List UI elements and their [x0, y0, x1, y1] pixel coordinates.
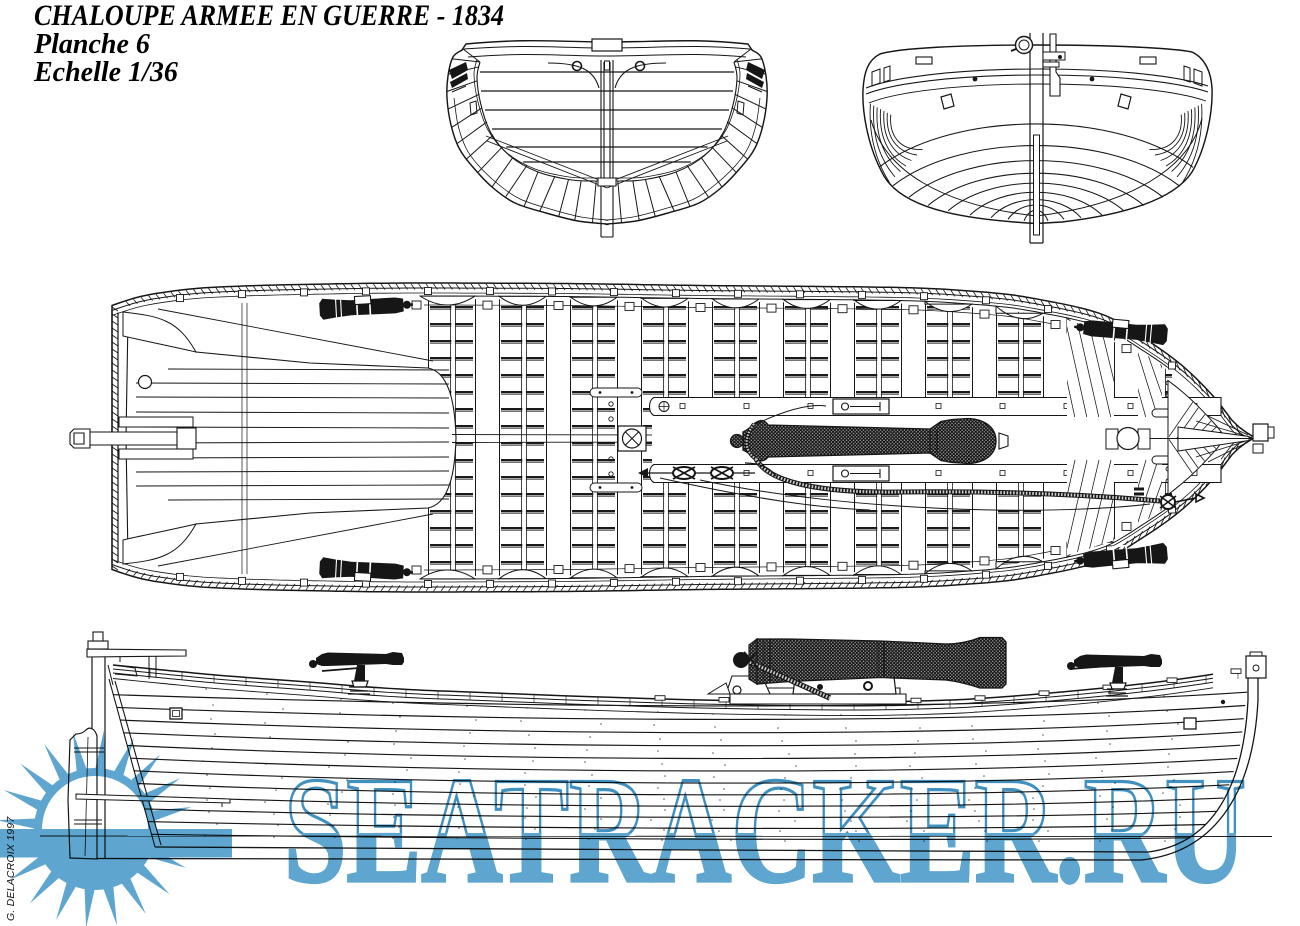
- svg-text:CHALOUPE ARMEE EN GUERRE - 183: CHALOUPE ARMEE EN GUERRE - 1834: [34, 0, 504, 32]
- svg-text:Echelle 1/36: Echelle 1/36: [33, 57, 178, 88]
- svg-text:Planche 6: Planche 6: [33, 29, 150, 60]
